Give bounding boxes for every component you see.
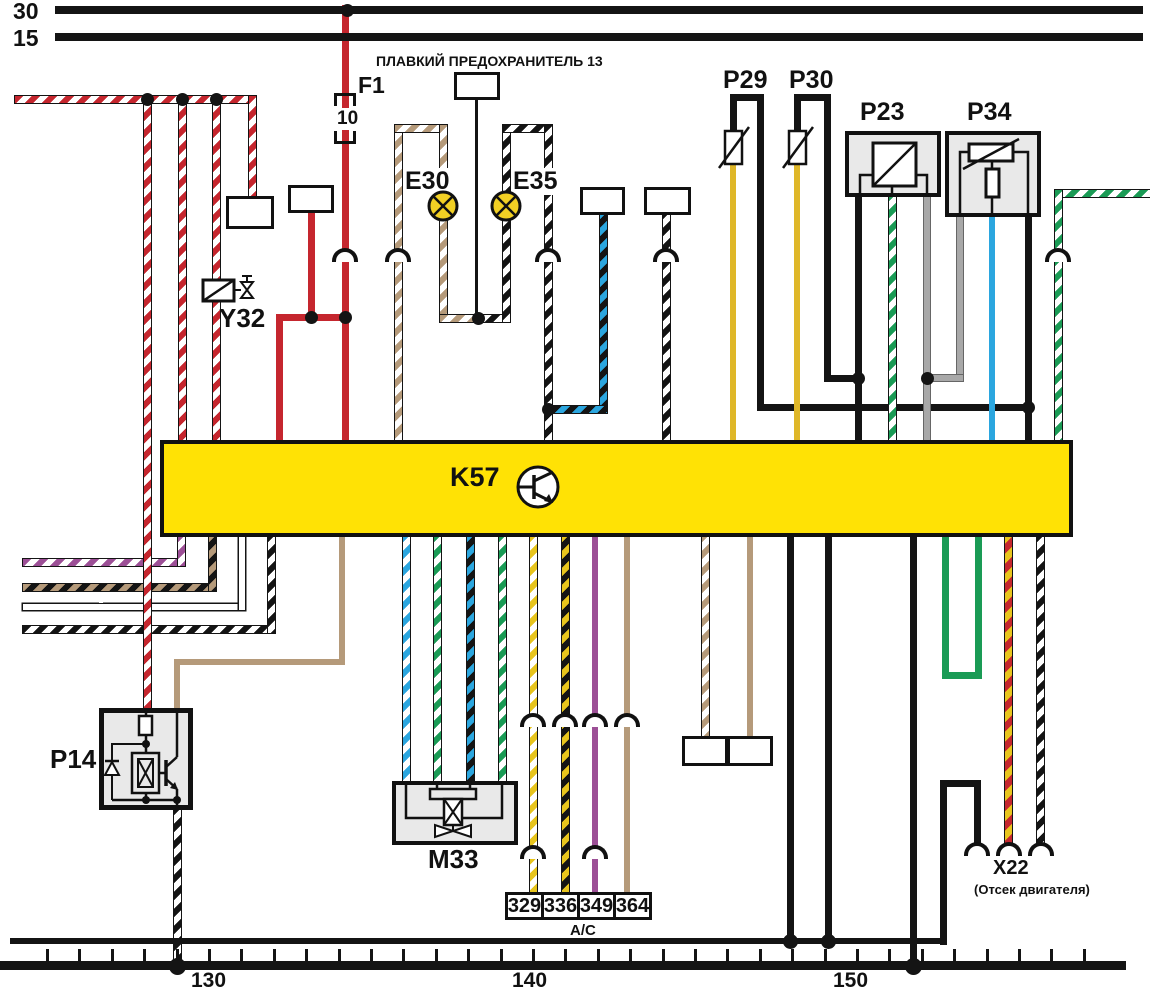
ruler-tick [467,949,470,961]
ruler-tick [208,949,211,961]
ruler-tick [694,949,697,961]
junction-dot [472,312,485,325]
wire-gauge-label [931,863,935,865]
ac-code-box-336: 336 [541,892,580,920]
wire-tcm-384-feed [308,210,315,321]
wire-at-106-b10 [663,211,670,444]
wire-gauge-label [388,595,392,597]
ruler-tick [111,949,114,961]
wire-fuse-f1-c16 [342,5,349,444]
ac-code-box-329: 329 [505,892,544,920]
wire-gauge-label [70,90,74,92]
connector-arc-icon [582,845,608,859]
wire-gauge-label [158,865,162,867]
ruler-tick [402,949,405,961]
wire-gauge-label [940,309,944,311]
e30-lamp-icon [426,189,460,223]
wire-gauge-label [295,246,299,248]
wire-gauge-label [589,336,593,338]
ruler-tick [726,949,729,961]
wire-feed-a6 [179,96,186,444]
wire-a12-gnd [787,534,794,945]
f1-rating: 10 [335,108,360,130]
wire-gauge-label [265,367,269,369]
wire-c3-m33 [499,534,506,786]
bus-15-line [55,33,1143,41]
connector-arc-icon [552,713,578,727]
wire-p30-black-a11 [824,94,831,382]
wire-striped-feed [249,96,256,200]
junction-dot [852,372,865,385]
p34-sensor-icon [945,131,1041,217]
junction-dot [821,934,836,949]
wire-d6-gnd [910,534,917,970]
ruler-tick [824,949,827,961]
wire-gauge-label [453,595,457,597]
ruler-tick [435,949,438,961]
wire-a1-feed [1055,190,1150,197]
wire-p14-3-gnd [174,807,181,970]
wire-p23-c11 [889,193,896,444]
m33-internals-icon [392,781,518,845]
wire-gauge-label [99,556,103,558]
ruler-tick [629,949,632,961]
ruler-tick [176,949,179,961]
wire-gauge-label [486,618,490,620]
wire-d7-gnd [825,534,832,945]
y32-label: Y32 [219,305,265,331]
wire-a10-p14-2 [174,659,180,711]
k57-module-box [160,440,1073,537]
code-box-377 [580,187,625,215]
ruler-tick [1083,949,1086,961]
wire-p29-c12 [730,161,736,443]
junction-dot [176,93,189,106]
ruler-tick [240,949,243,961]
wire-gauge-label [330,367,334,369]
junction-dot [1022,401,1035,414]
junction-dot [921,372,934,385]
wire-gauge-label [1008,309,1012,311]
wire-p34-c13 [989,213,995,443]
wire-out-b6 [178,534,185,566]
wire-p23-c14 [924,193,930,443]
wire-lamp-e30-loop [395,125,402,444]
wire-c4-m33 [434,534,441,786]
code-box-378 [682,736,728,766]
p29-sensor-icon [716,124,752,170]
wire-gauge-label [651,336,655,338]
m33-label: M33 [428,846,479,872]
connector-arc-icon [582,713,608,727]
wire-tcm-377-sig [600,211,607,413]
wire-p30-c10 [794,161,800,443]
wire-gauge-label [734,649,738,651]
ac-code-box-364: 364 [613,892,652,920]
connector-arc-icon [520,845,546,859]
code-box-382 [226,196,274,229]
junction-dot [341,4,354,17]
wire-gauge-label [423,618,427,620]
scale-150: 150 [833,970,868,990]
ruler-tick [986,949,989,961]
junction-dot [339,311,352,324]
wire-out-b6 [23,559,185,566]
wire-gauge-label [955,609,959,611]
wire-gauge-label [159,340,163,342]
p14-label: P14 [50,746,96,772]
wire-fuse13-264 [475,98,478,320]
connector-arc-icon [996,842,1022,856]
ruler-tick [597,949,600,961]
ruler-tick [338,949,341,961]
wire-gauge-label [324,624,328,626]
wire-gauge-label [577,595,581,597]
scale-130: 130 [191,970,226,990]
wire-out-d5 [209,534,216,591]
connector-arc-icon [614,713,640,727]
connector-arc-icon [1028,842,1054,856]
wire-gauge-label [712,367,716,369]
wire-gauge-label [99,601,103,603]
code-box-376 [727,736,773,766]
wire-gauge-label [1097,184,1101,186]
ruler-tick [791,949,794,961]
wire-gauge-label [517,595,521,597]
code-box-384 [288,185,334,213]
connector-arc-icon [1045,248,1071,262]
ruler-tick [1050,949,1053,961]
ac-label: А/С [570,923,596,938]
ruler-tick [143,949,146,961]
wire-a10-p14-2 [339,534,345,665]
wire-gauge-label [688,595,692,597]
x22-label: X22 [993,858,1029,878]
bus-30-line [55,6,1143,14]
wire-gauge-label [991,695,995,697]
wire-gauge-label [877,309,881,311]
junction-dot [542,403,555,416]
wire-a1-feed [1055,190,1062,444]
wire-gauge-label [535,336,539,338]
junction-dot [141,93,154,106]
wire-out-d5 [23,584,216,591]
ruler-tick [1018,949,1021,961]
wire-gauge-label [537,207,541,209]
wire-gauge-label [747,309,751,311]
f1-fuse-top-bracket-icon [334,93,356,106]
wire-gauge-label [387,207,391,209]
wire-a10-p14-2 [174,659,345,665]
wire-lamp-e35-loop [503,125,510,322]
code-box-264 [454,72,500,100]
ruler-tick [759,949,762,961]
junction-dot [783,934,798,949]
f1-label: F1 [358,74,385,97]
wire-gauge-label [779,367,783,369]
ruler-tick [532,949,535,961]
wire-lamp-e30-loop [440,125,447,322]
k57-transistor-icon [514,463,562,511]
wiring-diagram: 30 15 F1 10 ПЛАВКИЙ ПРЕДОХРАНИТЕЛЬ 13 Y3… [0,0,1150,990]
upper-ground-rail [10,938,946,944]
connector-arc-icon [332,248,358,262]
f1-fuse-bottom-bracket-icon [334,131,356,144]
wire-gauge-label [614,618,618,620]
ruler-tick [888,949,891,961]
wire-out-b3 [268,534,275,633]
ruler-tick [564,949,567,961]
wire-gauge-label [977,337,981,339]
junction-dot [905,958,922,975]
fuse13-title: ПЛАВКИЙ ПРЕДОХРАНИТЕЛЬ 13 [376,54,603,68]
wire-gauge-label [814,863,818,865]
wire-p29-black-d2 [757,94,764,411]
x22-note: (Отсек двигателя) [974,883,1090,896]
wire-feed-d16-y32 [213,96,220,444]
p34-label: P34 [967,100,1011,125]
wire-gauge-label [1023,728,1027,730]
ruler-tick [856,949,859,961]
ac-code-box-349: 349 [577,892,616,920]
wire-c2-378 [702,534,709,742]
connector-arc-icon [964,842,990,856]
code-box-106 [644,187,691,215]
wire-gauge-label [907,337,911,339]
wire-c5-m33 [403,534,410,786]
wire-out-d4 [239,534,245,610]
wire-gauge-label [99,623,103,625]
wire-c6-m33 [467,534,474,786]
e35-lamp-icon [489,189,523,223]
p23-label: P23 [860,100,904,125]
wire-out-d4 [23,604,245,610]
connector-arc-icon [653,248,679,262]
wire-x22-a-gnd [974,780,981,846]
p30-label: P30 [789,68,833,93]
wire-a9-x22 [1037,534,1044,846]
ruler-tick [78,949,81,961]
ruler-tick [273,949,276,961]
wire-gauge-label [896,722,900,724]
wire-gauge-label [129,236,133,238]
ruler-tick [953,949,956,961]
junction-dot [210,93,223,106]
wire-gauge-label [387,336,391,338]
k57-label: K57 [450,464,500,491]
bus-15-label: 15 [13,27,39,50]
ruler-tick [46,949,49,961]
wire-c7-376 [747,534,753,741]
wire-d9-d10-jumper [942,534,949,679]
wire-p23-a11 [855,193,862,444]
wire-gauge-label [776,863,780,865]
wire-gauge-label [811,309,815,311]
wire-gauge-label [202,151,206,153]
p30-sensor-icon [780,124,816,170]
connector-arc-icon [535,248,561,262]
ruler-tick [305,949,308,961]
ruler-tick [370,949,373,961]
junction-dot [305,311,318,324]
connector-arc-icon [385,248,411,262]
p14-internals-icon [99,708,193,810]
p29-label: P29 [723,68,767,93]
ruler-tick [921,949,924,961]
wire-gauge-label [237,151,241,153]
ruler-tick [500,949,503,961]
wire-gauge-label [1037,336,1041,338]
wire-gauge-label [844,337,848,339]
p23-sensor-icon [845,131,941,197]
wire-a8-x22 [1005,534,1012,846]
wire-x22-a-gnd [940,780,947,945]
ruler-tick [662,949,665,961]
bus-30-label: 30 [13,0,39,23]
wire-gauge-label [99,581,103,583]
wire-d9-d10-jumper [975,534,982,679]
wire-p34-gray [957,213,963,381]
connector-arc-icon [520,713,546,727]
wire-feed-p14-1 [144,96,151,712]
wire-gauge-label [546,618,550,620]
scale-140: 140 [512,970,547,990]
wire-branch-b1 [276,314,283,444]
